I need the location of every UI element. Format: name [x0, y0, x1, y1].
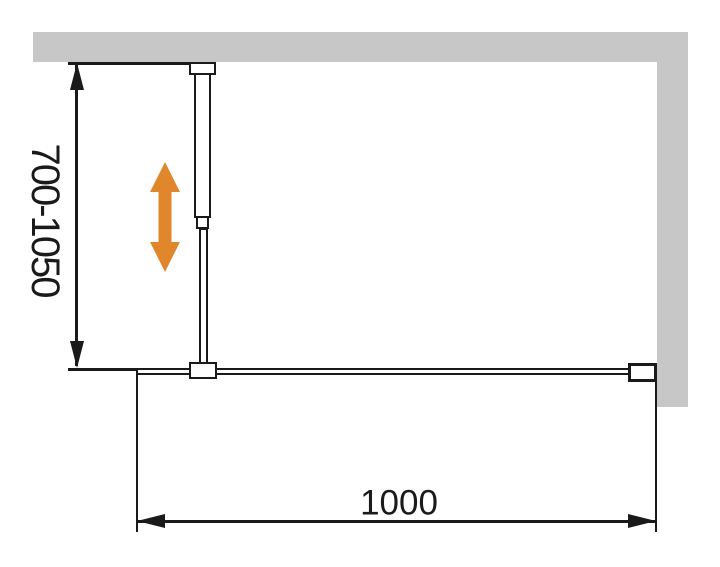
arrowhead-down-icon	[70, 341, 84, 368]
support-bar-outer-tube	[194, 73, 211, 218]
glass-wall-profile	[628, 363, 657, 382]
adjustable-length-arrow-icon	[149, 162, 181, 272]
support-bar-inner-tube	[199, 228, 208, 364]
support-bar-wall-bracket	[189, 62, 216, 75]
wall-right	[657, 32, 688, 407]
width-extension-line-left	[136, 370, 138, 532]
arrowhead-up-icon	[70, 63, 84, 90]
dimension-extension-line-glass-edge	[68, 368, 138, 371]
support-bar-glass-connector	[189, 362, 217, 379]
width-dimension-label: 1000	[360, 486, 438, 521]
dimension-extension-line-wall-face	[68, 62, 192, 65]
arrowhead-left-icon	[137, 514, 165, 528]
height-dimension-line	[75, 64, 78, 366]
shower-screen-plan-diagram: 700-1050 1000	[0, 0, 720, 567]
width-extension-line-right	[655, 382, 657, 532]
height-dimension-label: 700-1050	[25, 143, 65, 296]
arrowhead-right-icon	[628, 514, 656, 528]
wall-top	[33, 32, 688, 62]
double-headed-vertical-arrow-shape	[150, 162, 180, 272]
